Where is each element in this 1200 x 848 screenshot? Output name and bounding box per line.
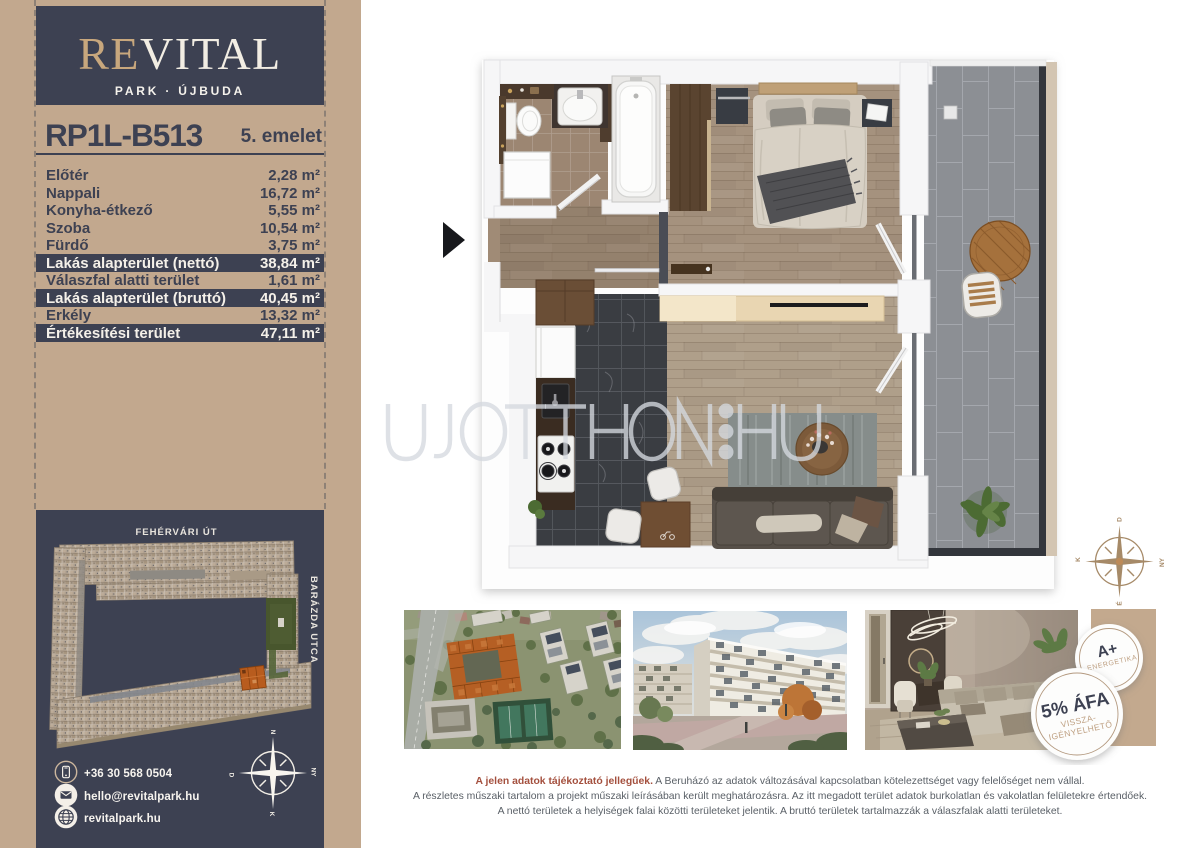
svg-text:D: D: [1117, 517, 1124, 522]
svg-text:NY: NY: [310, 767, 317, 777]
svg-text:K: K: [268, 812, 275, 817]
svg-text:N: N: [269, 730, 276, 735]
svg-text:NY: NY: [1159, 557, 1166, 567]
svg-text:D: D: [228, 773, 235, 778]
svg-text:K: K: [1075, 557, 1082, 562]
